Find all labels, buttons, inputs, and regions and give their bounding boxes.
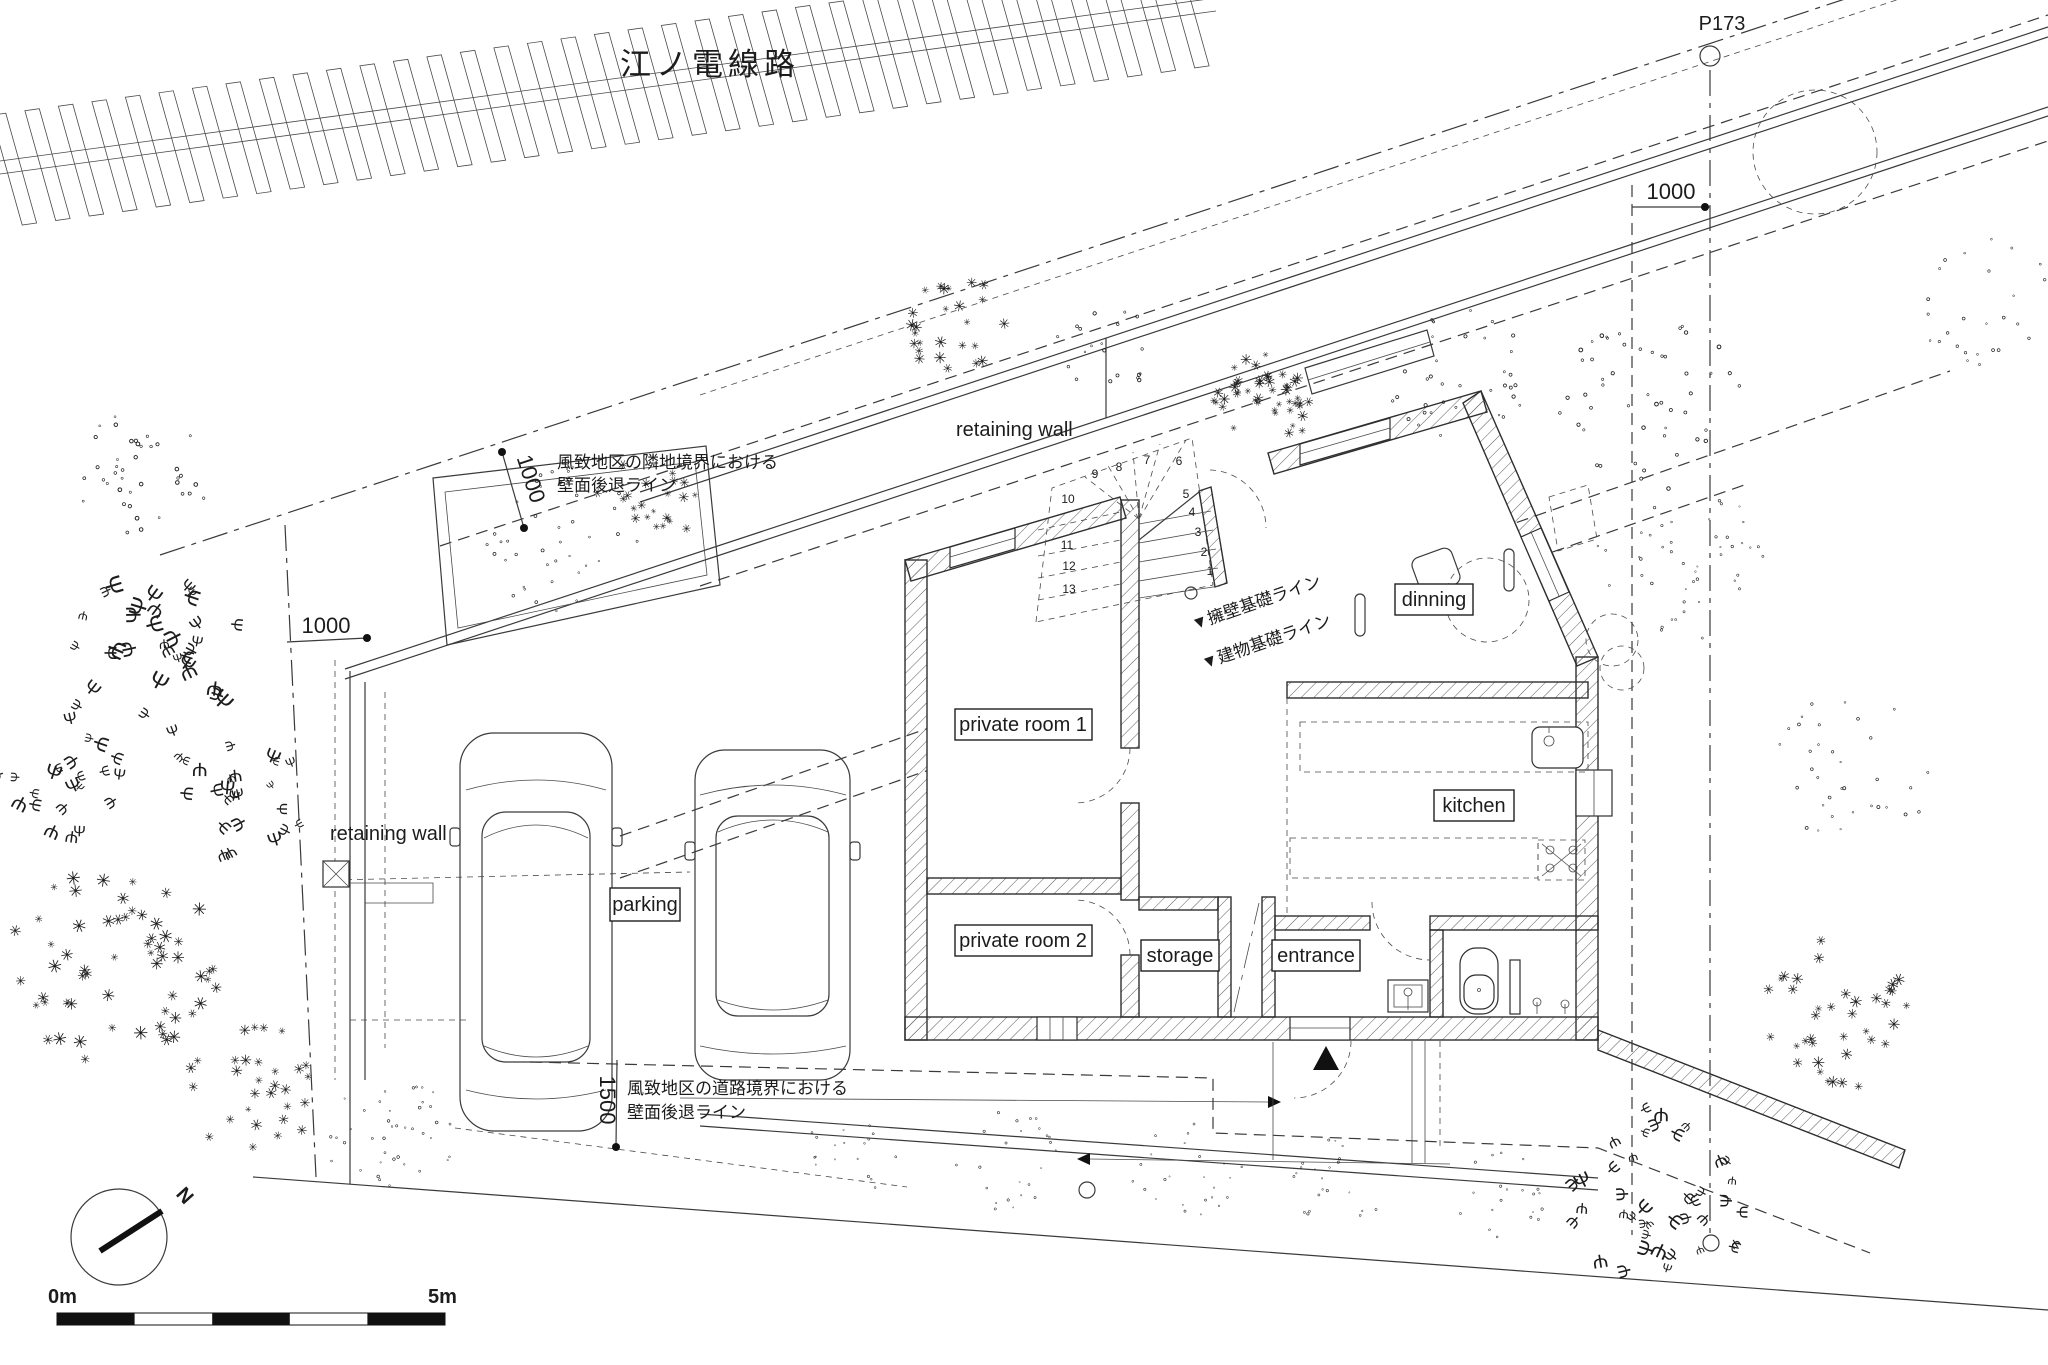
- svg-text:∘: ∘: [1677, 326, 1694, 339]
- svg-text:∘: ∘: [1017, 1129, 1024, 1134]
- svg-text:∘: ∘: [1829, 811, 1835, 821]
- railway-name: 江ノ電線路: [620, 47, 800, 82]
- svg-text:∘: ∘: [1211, 1184, 1218, 1190]
- svg-text:∘: ∘: [1138, 1159, 1144, 1170]
- svg-text:∘: ∘: [359, 1107, 369, 1114]
- svg-text:Ψ: Ψ: [0, 766, 8, 782]
- svg-text:Ψ: Ψ: [98, 572, 129, 598]
- svg-text:8: 8: [1116, 460, 1123, 474]
- svg-text:∘: ∘: [1634, 420, 1652, 435]
- label-storage: storage: [1141, 940, 1219, 971]
- svg-text:✳: ✳: [77, 960, 92, 978]
- svg-text:∘: ∘: [89, 459, 105, 475]
- svg-text:Ψ: Ψ: [95, 764, 112, 779]
- svg-text:∘: ∘: [484, 539, 490, 550]
- svg-text:Ψ: Ψ: [53, 797, 74, 818]
- svg-text:∘: ∘: [1437, 378, 1450, 390]
- svg-text:∘: ∘: [1010, 1204, 1016, 1210]
- svg-text:∘: ∘: [357, 1166, 365, 1176]
- svg-text:✳: ✳: [920, 283, 931, 296]
- svg-text:∘: ∘: [1586, 338, 1597, 345]
- svg-text:✳: ✳: [77, 1050, 93, 1067]
- svg-text:storage: storage: [1147, 945, 1214, 967]
- svg-text:∘: ∘: [841, 1139, 848, 1147]
- svg-text:∘: ∘: [1630, 456, 1641, 470]
- svg-text:壁面後退ライン: 壁面後退ライン: [557, 476, 676, 495]
- label-private-room-2: private room 2: [955, 925, 1092, 956]
- svg-text:∘: ∘: [1807, 698, 1818, 712]
- svg-text:Ψ: Ψ: [1653, 1103, 1669, 1124]
- svg-text:1500: 1500: [595, 1076, 620, 1125]
- svg-text:∘: ∘: [1431, 358, 1441, 364]
- svg-text:∘: ∘: [427, 1134, 433, 1141]
- svg-text:∘: ∘: [1956, 312, 1971, 325]
- svg-text:∘: ∘: [1813, 772, 1823, 783]
- svg-text:∘: ∘: [519, 582, 528, 592]
- svg-text:∘: ∘: [954, 1160, 960, 1169]
- label-dinning: dinning: [1395, 584, 1473, 615]
- svg-text:∘: ∘: [1733, 572, 1744, 579]
- svg-text:∘: ∘: [549, 466, 556, 477]
- entrance-approach: [680, 1041, 1450, 1165]
- svg-text:∘: ∘: [1972, 350, 1982, 359]
- svg-text:3: 3: [1195, 525, 1202, 539]
- dimension-top-left: 1000: [498, 448, 551, 532]
- svg-text:∘: ∘: [1691, 575, 1704, 584]
- svg-text:∘: ∘: [1500, 366, 1508, 377]
- svg-text:∘: ∘: [1677, 560, 1689, 567]
- svg-text:✳: ✳: [71, 1030, 90, 1052]
- svg-text:Ψ: Ψ: [136, 705, 156, 724]
- svg-text:✳: ✳: [248, 1140, 257, 1152]
- svg-text:kitchen: kitchen: [1442, 795, 1505, 817]
- svg-text:∘: ∘: [1701, 423, 1711, 436]
- svg-text:∘: ∘: [1388, 394, 1398, 407]
- svg-text:∘: ∘: [1836, 760, 1843, 765]
- svg-text:∘: ∘: [1559, 391, 1576, 404]
- svg-text:壁面後退ライン: 壁面後退ライン: [627, 1103, 746, 1122]
- svg-text:∘: ∘: [1718, 544, 1724, 551]
- svg-text:∘: ∘: [1660, 480, 1678, 497]
- svg-text:dinning: dinning: [1402, 589, 1467, 611]
- svg-text:∘: ∘: [1723, 532, 1731, 544]
- svg-text:✳: ✳: [128, 877, 139, 886]
- svg-text:6: 6: [1176, 454, 1183, 468]
- svg-text:✳: ✳: [1261, 350, 1272, 360]
- dimension-west: 1000: [287, 613, 371, 642]
- plan-drawing: 1 2 3 4 5 6 7 8 9 10 11 12 13: [0, 0, 2048, 1365]
- svg-text:∘: ∘: [1692, 568, 1700, 575]
- svg-text:∘: ∘: [1313, 1167, 1318, 1174]
- svg-text:∘: ∘: [407, 1084, 419, 1092]
- west-wall: [905, 560, 927, 1040]
- svg-text:∘: ∘: [1326, 1135, 1332, 1145]
- south-wall: [905, 1017, 1598, 1040]
- svg-text:∘: ∘: [1103, 376, 1119, 386]
- svg-text:✳: ✳: [1835, 1045, 1856, 1065]
- svg-text:∘: ∘: [612, 526, 625, 542]
- svg-text:∘: ∘: [347, 1125, 355, 1132]
- svg-text:∘: ∘: [2022, 334, 2035, 342]
- svg-text:∘: ∘: [993, 1110, 1004, 1116]
- svg-text:∘: ∘: [1672, 448, 1682, 463]
- svg-text:Ψ: Ψ: [1612, 1187, 1633, 1202]
- svg-text:✳: ✳: [996, 317, 1013, 331]
- svg-text:∘: ∘: [375, 1097, 385, 1106]
- svg-text:∘: ∘: [1128, 1176, 1137, 1186]
- svg-text:∘: ∘: [1090, 306, 1100, 322]
- svg-text:✳: ✳: [274, 1112, 292, 1127]
- svg-text:Ψ: Ψ: [1626, 1148, 1640, 1164]
- svg-text:∘: ∘: [1485, 385, 1496, 396]
- svg-text:✳: ✳: [165, 1011, 182, 1025]
- svg-text:∘: ∘: [87, 431, 104, 444]
- svg-text:∘: ∘: [841, 1126, 847, 1133]
- svg-text:∘: ∘: [584, 562, 589, 570]
- svg-text:風致地区の道路境界における: 風致地区の道路境界における: [627, 1079, 848, 1098]
- svg-text:13: 13: [1062, 582, 1076, 596]
- svg-text:∘: ∘: [418, 1128, 429, 1139]
- svg-text:∘: ∘: [2011, 291, 2016, 300]
- svg-text:∘: ∘: [1679, 409, 1693, 417]
- svg-text:∘: ∘: [1191, 1119, 1198, 1129]
- dimension-top-right: 1000: [1632, 179, 1710, 211]
- svg-text:Ψ: Ψ: [273, 803, 289, 816]
- svg-text:∘: ∘: [1487, 1225, 1492, 1234]
- svg-text:Ψ: Ψ: [1717, 1194, 1736, 1208]
- svg-text:∘: ∘: [1741, 518, 1745, 525]
- svg-text:✳: ✳: [133, 1022, 149, 1043]
- svg-text:∘: ∘: [1747, 543, 1753, 551]
- scale-end: 5m: [428, 1286, 457, 1308]
- svg-text:✳: ✳: [1759, 981, 1778, 998]
- svg-text:∘: ∘: [632, 537, 643, 546]
- svg-text:∘: ∘: [1695, 598, 1702, 606]
- svg-text:∘: ∘: [595, 557, 603, 564]
- svg-text:✳: ✳: [1882, 1014, 1903, 1035]
- svg-text:Ψ: Ψ: [1636, 1100, 1655, 1117]
- svg-text:∘: ∘: [2007, 242, 2016, 253]
- svg-text:Ψ: Ψ: [164, 722, 181, 741]
- svg-text:∘: ∘: [1657, 431, 1670, 442]
- svg-text:∘: ∘: [1705, 370, 1717, 377]
- svg-text:∘: ∘: [1962, 248, 1967, 257]
- svg-text:∘: ∘: [1870, 773, 1884, 786]
- svg-text:∘: ∘: [1032, 1113, 1040, 1123]
- svg-text:∘: ∘: [1496, 1195, 1507, 1205]
- svg-text:∘: ∘: [1636, 570, 1647, 580]
- svg-text:∘: ∘: [980, 1126, 989, 1137]
- svg-text:∘: ∘: [1150, 1132, 1160, 1139]
- svg-text:∘: ∘: [983, 1183, 990, 1193]
- svg-text:∘: ∘: [1036, 1124, 1043, 1133]
- railway-track: [0, 0, 1216, 225]
- site-plan-canvas: 1 2 3 4 5 6 7 8 9 10 11 12 13: [0, 0, 2048, 1365]
- svg-text:∘: ∘: [1223, 1195, 1232, 1200]
- svg-text:∘: ∘: [1038, 1164, 1043, 1171]
- svg-text:∘: ∘: [1663, 405, 1678, 415]
- svg-text:Ψ: Ψ: [1724, 1239, 1742, 1254]
- svg-text:∘: ∘: [1214, 1203, 1222, 1209]
- svg-text:∘: ∘: [487, 549, 502, 559]
- svg-text:✳: ✳: [1762, 1030, 1776, 1042]
- svg-text:∘: ∘: [1152, 1196, 1159, 1201]
- svg-text:∘: ∘: [78, 474, 92, 482]
- svg-text:∘: ∘: [1683, 585, 1688, 592]
- svg-text:∘: ∘: [1803, 747, 1816, 757]
- svg-text:✳: ✳: [1227, 422, 1239, 433]
- north-compass: N: [71, 1183, 197, 1285]
- svg-text:∘: ∘: [1722, 365, 1739, 381]
- svg-text:✳: ✳: [92, 871, 114, 889]
- svg-text:∘: ∘: [1926, 336, 1935, 346]
- svg-text:✳: ✳: [248, 1117, 268, 1134]
- svg-text:∘: ∘: [1228, 1176, 1234, 1180]
- svg-text:∘: ∘: [975, 1161, 984, 1173]
- svg-text:∘: ∘: [1982, 266, 1995, 277]
- svg-text:∘: ∘: [2040, 273, 2048, 286]
- svg-text:∘: ∘: [1069, 373, 1083, 384]
- svg-text:∘: ∘: [1698, 635, 1708, 641]
- svg-text:∘: ∘: [1706, 516, 1714, 522]
- svg-text:∘: ∘: [97, 421, 103, 430]
- svg-text:∘: ∘: [1736, 380, 1743, 392]
- svg-text:∘: ∘: [1815, 740, 1822, 750]
- svg-text:∘: ∘: [1053, 1148, 1060, 1153]
- svg-text:Ψ: Ψ: [211, 815, 235, 838]
- svg-text:∘: ∘: [1836, 826, 1844, 832]
- svg-text:✳: ✳: [1804, 1037, 1819, 1049]
- svg-text:∘: ∘: [1598, 381, 1610, 389]
- car-left: [450, 733, 622, 1131]
- svg-text:Ψ: Ψ: [1693, 1242, 1706, 1257]
- svg-text:∘: ∘: [1119, 308, 1130, 317]
- svg-text:∘: ∘: [814, 1132, 820, 1142]
- svg-text:∘: ∘: [529, 597, 543, 607]
- svg-text:✳: ✳: [299, 1095, 310, 1110]
- svg-text:∘: ∘: [507, 590, 521, 602]
- svg-text:∘: ∘: [1519, 1156, 1527, 1161]
- svg-text:∘: ∘: [380, 1149, 390, 1156]
- svg-text:Ψ: Ψ: [222, 738, 240, 753]
- svg-text:✳: ✳: [679, 520, 695, 536]
- svg-text:∘: ∘: [1648, 503, 1661, 513]
- svg-text:∘: ∘: [377, 1131, 390, 1145]
- svg-text:∘: ∘: [326, 1158, 336, 1165]
- svg-text:✳: ✳: [187, 896, 212, 921]
- svg-text:∘: ∘: [1018, 1191, 1024, 1198]
- svg-text:✳: ✳: [225, 1114, 238, 1124]
- svg-text:✳: ✳: [961, 315, 973, 328]
- svg-text:✳: ✳: [33, 911, 46, 925]
- svg-text:∘: ∘: [1827, 745, 1837, 758]
- svg-text:✳: ✳: [69, 914, 90, 938]
- svg-text:11: 11: [1061, 538, 1074, 552]
- svg-text:Ψ: Ψ: [1575, 1199, 1589, 1217]
- svg-text:4: 4: [1189, 505, 1196, 519]
- car-right: [685, 750, 860, 1080]
- svg-text:Ψ: Ψ: [1590, 1249, 1609, 1272]
- svg-text:✳: ✳: [49, 882, 60, 892]
- svg-text:Ψ: Ψ: [67, 638, 84, 654]
- svg-text:∘: ∘: [992, 1204, 998, 1214]
- svg-text:∘: ∘: [813, 1163, 819, 1167]
- svg-text:Ψ: Ψ: [1601, 1158, 1623, 1179]
- svg-text:∘: ∘: [1718, 550, 1725, 561]
- svg-text:✳: ✳: [1839, 1032, 1851, 1042]
- svg-text:∘: ∘: [1678, 366, 1695, 382]
- svg-text:∘: ∘: [1488, 1207, 1496, 1213]
- east-wall: [1576, 657, 1598, 1040]
- svg-text:∘: ∘: [1996, 313, 2009, 323]
- svg-text:✳: ✳: [1901, 1000, 1915, 1013]
- svg-text:∘: ∘: [1815, 827, 1823, 833]
- svg-text:∘: ∘: [1975, 358, 1984, 369]
- svg-text:∘: ∘: [373, 1169, 383, 1183]
- svg-text:∘: ∘: [1331, 1138, 1338, 1144]
- scale-start: 0m: [48, 1286, 77, 1308]
- svg-text:∘: ∘: [1437, 430, 1443, 440]
- svg-text:∘: ∘: [833, 1143, 837, 1149]
- svg-text:∘: ∘: [891, 1152, 900, 1162]
- svg-text:∘: ∘: [1936, 336, 1943, 347]
- svg-text:∘: ∘: [1925, 768, 1931, 778]
- svg-text:∘: ∘: [1001, 1137, 1011, 1148]
- svg-text:∘: ∘: [1183, 1129, 1193, 1137]
- svg-text:Ψ: Ψ: [100, 646, 120, 661]
- svg-text:✳: ✳: [63, 869, 85, 887]
- svg-text:∘: ∘: [854, 1155, 862, 1163]
- svg-text:Ψ: Ψ: [1694, 1208, 1715, 1229]
- svg-text:∘: ∘: [1130, 308, 1143, 324]
- svg-text:∘: ∘: [1497, 1148, 1505, 1158]
- svg-text:✳: ✳: [940, 303, 951, 315]
- svg-text:∘: ∘: [1710, 532, 1723, 542]
- svg-text:∘: ∘: [1665, 548, 1676, 555]
- svg-text:Ψ: Ψ: [112, 766, 127, 785]
- svg-text:✳: ✳: [964, 277, 979, 288]
- svg-text:∘: ∘: [547, 577, 558, 587]
- svg-text:∘: ∘: [1577, 389, 1593, 400]
- svg-text:∘: ∘: [415, 1166, 424, 1176]
- entrance-marker-triangle: [1313, 1046, 1339, 1070]
- svg-text:∘: ∘: [555, 538, 566, 547]
- svg-text:∘: ∘: [445, 1152, 453, 1162]
- svg-text:∘: ∘: [1951, 339, 1964, 353]
- svg-text:Ψ: Ψ: [1604, 1131, 1623, 1152]
- dashed-tree-outlines: [1586, 90, 1877, 690]
- scale-bar: 0m 5m: [48, 1286, 457, 1325]
- svg-text:✳: ✳: [159, 884, 173, 902]
- svg-text:∘: ∘: [126, 451, 144, 463]
- svg-text:∘: ∘: [429, 1090, 436, 1095]
- svg-text:∘: ∘: [1924, 292, 1932, 306]
- svg-text:∘: ∘: [573, 595, 581, 605]
- svg-text:∘: ∘: [1455, 381, 1467, 390]
- svg-text:∘: ∘: [1776, 739, 1783, 749]
- svg-text:private room 2: private room 2: [959, 930, 1087, 952]
- svg-text:✳: ✳: [185, 1080, 202, 1094]
- svg-text:∘: ∘: [2035, 259, 2045, 269]
- svg-text:∘: ∘: [870, 1183, 880, 1191]
- svg-text:Ψ: Ψ: [1710, 1149, 1730, 1172]
- svg-text:∘: ∘: [1487, 316, 1499, 329]
- svg-text:∘: ∘: [1505, 328, 1521, 344]
- svg-text:✳: ✳: [1824, 1000, 1839, 1013]
- svg-text:∘: ∘: [1011, 1116, 1023, 1125]
- svg-text:∘: ∘: [513, 549, 520, 561]
- svg-text:∘: ∘: [1370, 1206, 1381, 1213]
- svg-text:✳: ✳: [275, 1025, 288, 1036]
- svg-text:1000: 1000: [302, 613, 351, 638]
- svg-text:∘: ∘: [586, 532, 593, 542]
- svg-text:∘: ∘: [1941, 327, 1954, 340]
- svg-text:∘: ∘: [1220, 1161, 1227, 1166]
- svg-text:∘: ∘: [1139, 1184, 1151, 1194]
- svg-text:∘: ∘: [1149, 1151, 1153, 1157]
- svg-text:∘: ∘: [1135, 343, 1148, 354]
- svg-text:∘: ∘: [1298, 1163, 1305, 1173]
- svg-text:∘: ∘: [1347, 1190, 1352, 1197]
- svg-text:∘: ∘: [1470, 1188, 1477, 1196]
- svg-text:∘: ∘: [1683, 385, 1700, 401]
- svg-text:∘: ∘: [1585, 400, 1597, 415]
- svg-text:Ψ: Ψ: [230, 786, 246, 805]
- svg-text:private room 1: private room 1: [959, 714, 1087, 736]
- svg-text:1000: 1000: [1647, 179, 1696, 204]
- svg-text:∘: ∘: [1030, 1195, 1040, 1201]
- svg-text:Ψ: Ψ: [176, 785, 197, 802]
- svg-text:Ψ: Ψ: [101, 791, 122, 811]
- svg-text:∘: ∘: [186, 430, 194, 441]
- svg-text:parking: parking: [612, 894, 678, 916]
- railway-ties: [0, 0, 1209, 225]
- svg-text:∘: ∘: [1758, 553, 1769, 560]
- svg-text:∘: ∘: [1658, 622, 1666, 634]
- svg-text:∘: ∘: [379, 1158, 383, 1164]
- svg-text:2: 2: [1201, 545, 1208, 559]
- svg-text:∘: ∘: [553, 522, 564, 532]
- svg-text:∘: ∘: [1604, 365, 1621, 381]
- svg-text:∘: ∘: [119, 497, 130, 512]
- svg-text:∘: ∘: [1665, 538, 1676, 546]
- svg-text:∘: ∘: [401, 1123, 408, 1131]
- label-parking: parking: [610, 888, 680, 921]
- svg-text:✳: ✳: [109, 952, 122, 964]
- svg-text:∘: ∘: [1182, 1139, 1189, 1146]
- svg-text:✳: ✳: [1788, 1055, 1806, 1070]
- svg-text:✳: ✳: [929, 333, 950, 353]
- svg-text:∘: ∘: [342, 1096, 348, 1103]
- svg-text:∘: ∘: [1793, 781, 1801, 793]
- svg-text:entrance: entrance: [1277, 945, 1355, 967]
- svg-text:Ψ: Ψ: [77, 607, 90, 623]
- svg-text:∘: ∘: [1042, 1133, 1051, 1139]
- svg-text:✳: ✳: [1854, 1079, 1863, 1091]
- svg-text:Ψ: Ψ: [265, 779, 278, 793]
- svg-text:✳: ✳: [619, 494, 631, 504]
- svg-text:∘: ∘: [1840, 698, 1850, 707]
- svg-text:∘: ∘: [1905, 783, 1918, 794]
- svg-text:∘: ∘: [2013, 318, 2021, 330]
- svg-text:5: 5: [1183, 487, 1190, 501]
- svg-text:∘: ∘: [1197, 1210, 1203, 1217]
- survey-marker: P173: [1699, 13, 1746, 35]
- svg-text:∘: ∘: [387, 1183, 394, 1188]
- svg-text:∘: ∘: [831, 1157, 838, 1163]
- svg-text:✳: ✳: [242, 1103, 253, 1114]
- svg-text:✳: ✳: [269, 1066, 280, 1079]
